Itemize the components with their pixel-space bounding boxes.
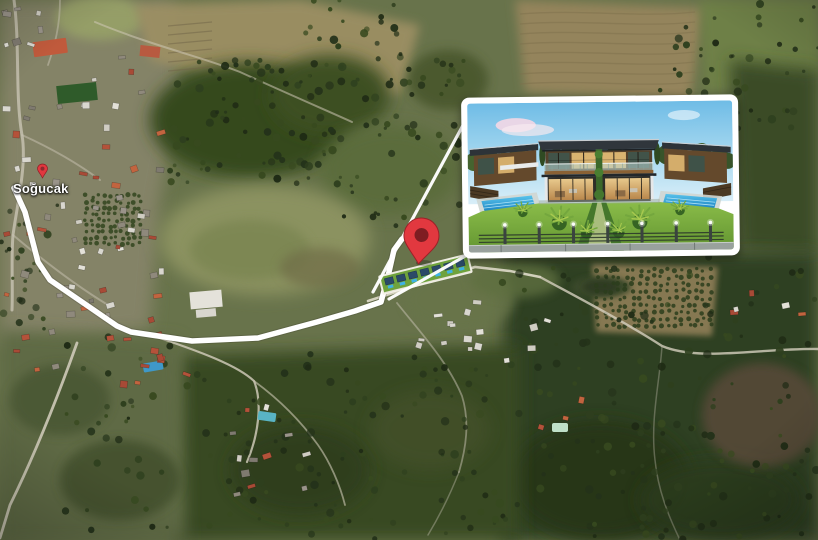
map-screenshot-root: Soğucak xyxy=(0,0,818,540)
place-label-sogucak[interactable]: Soğucak xyxy=(13,181,69,196)
villa-render-image xyxy=(467,100,734,252)
satellite-map[interactable] xyxy=(0,0,818,540)
place-marker-icon xyxy=(36,163,49,180)
center-villa xyxy=(538,140,660,203)
project-render-callout xyxy=(461,94,740,258)
